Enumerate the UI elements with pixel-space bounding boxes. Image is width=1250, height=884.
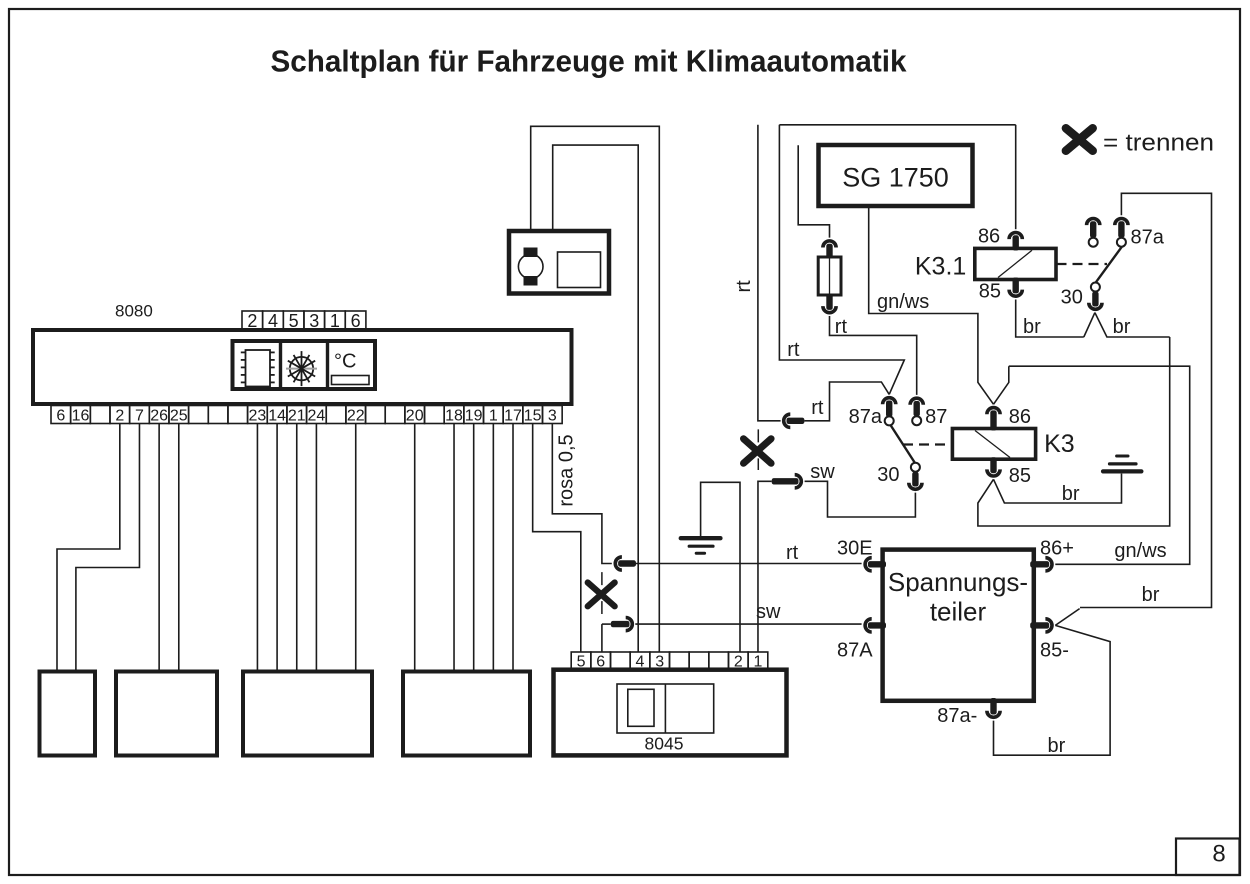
- svg-text:16: 16: [72, 408, 90, 425]
- svg-text:21: 21: [288, 408, 306, 425]
- svg-text:br: br: [1023, 316, 1041, 338]
- svg-text:87: 87: [925, 406, 947, 428]
- svg-text:br: br: [1142, 584, 1160, 606]
- svg-text:3: 3: [655, 654, 664, 671]
- svg-text:rt: rt: [786, 542, 799, 564]
- svg-text:85: 85: [1009, 465, 1031, 487]
- svg-text:teiler: teiler: [930, 597, 987, 627]
- svg-text:2: 2: [734, 654, 743, 671]
- svg-text:2: 2: [247, 311, 257, 331]
- svg-text:15: 15: [524, 408, 542, 425]
- svg-text:3: 3: [548, 408, 557, 425]
- svg-text:°C: °C: [334, 351, 356, 373]
- svg-text:6: 6: [596, 654, 605, 671]
- svg-text:86: 86: [1009, 406, 1031, 428]
- svg-text:26: 26: [150, 408, 168, 425]
- svg-text:7: 7: [135, 408, 144, 425]
- svg-text:2: 2: [115, 408, 124, 425]
- svg-text:14: 14: [268, 408, 286, 425]
- svg-text:30E: 30E: [837, 538, 873, 560]
- svg-text:SG 1750: SG 1750: [842, 163, 949, 193]
- svg-text:87a: 87a: [849, 406, 883, 428]
- svg-text:86: 86: [978, 226, 1000, 248]
- svg-text:4: 4: [636, 654, 645, 671]
- svg-text:4: 4: [268, 311, 278, 331]
- svg-text:1: 1: [489, 408, 498, 425]
- svg-text:Spannungs-: Spannungs-: [888, 567, 1028, 597]
- svg-text:23: 23: [249, 408, 267, 425]
- svg-text:rt: rt: [811, 397, 824, 419]
- svg-text:= trennen: = trennen: [1103, 130, 1214, 157]
- svg-text:25: 25: [170, 408, 188, 425]
- svg-text:86+: 86+: [1040, 538, 1074, 560]
- svg-text:85: 85: [979, 281, 1001, 303]
- svg-text:6: 6: [351, 311, 361, 331]
- svg-text:K3.1: K3.1: [915, 253, 966, 281]
- svg-text:8045: 8045: [645, 734, 684, 754]
- svg-text:87a: 87a: [1131, 227, 1165, 249]
- svg-text:rosa 0,5: rosa 0,5: [556, 434, 578, 506]
- svg-text:22: 22: [347, 408, 365, 425]
- svg-text:8: 8: [1212, 841, 1225, 868]
- svg-text:1: 1: [330, 311, 340, 331]
- svg-text:5: 5: [577, 654, 586, 671]
- svg-text:19: 19: [465, 408, 483, 425]
- svg-text:8080: 8080: [115, 302, 153, 321]
- svg-text:17: 17: [504, 408, 522, 425]
- svg-text:85-: 85-: [1040, 640, 1069, 662]
- svg-text:gn/ws: gn/ws: [877, 291, 929, 313]
- svg-text:br: br: [1113, 316, 1131, 338]
- svg-text:87a-: 87a-: [937, 705, 977, 727]
- svg-text:6: 6: [56, 408, 65, 425]
- svg-text:3: 3: [309, 311, 319, 331]
- svg-text:sw: sw: [810, 461, 835, 483]
- svg-text:30: 30: [1061, 287, 1083, 309]
- svg-text:1: 1: [754, 654, 763, 671]
- svg-text:24: 24: [308, 408, 326, 425]
- svg-text:br: br: [1048, 735, 1066, 757]
- svg-text:rt: rt: [733, 280, 755, 293]
- svg-text:20: 20: [406, 408, 424, 425]
- svg-text:gn/ws: gn/ws: [1114, 540, 1166, 562]
- svg-text:rt: rt: [835, 316, 848, 338]
- svg-text:sw: sw: [756, 601, 781, 623]
- svg-text:30: 30: [877, 464, 899, 486]
- svg-text:87A: 87A: [837, 640, 873, 662]
- svg-text:5: 5: [289, 311, 299, 331]
- svg-text:br: br: [1062, 483, 1080, 505]
- svg-text:18: 18: [445, 408, 463, 425]
- svg-text:Schaltplan für Fahrzeuge mit K: Schaltplan für Fahrzeuge mit Klimaautoma…: [271, 44, 908, 79]
- svg-text:K3: K3: [1044, 430, 1075, 458]
- svg-text:rt: rt: [787, 339, 800, 361]
